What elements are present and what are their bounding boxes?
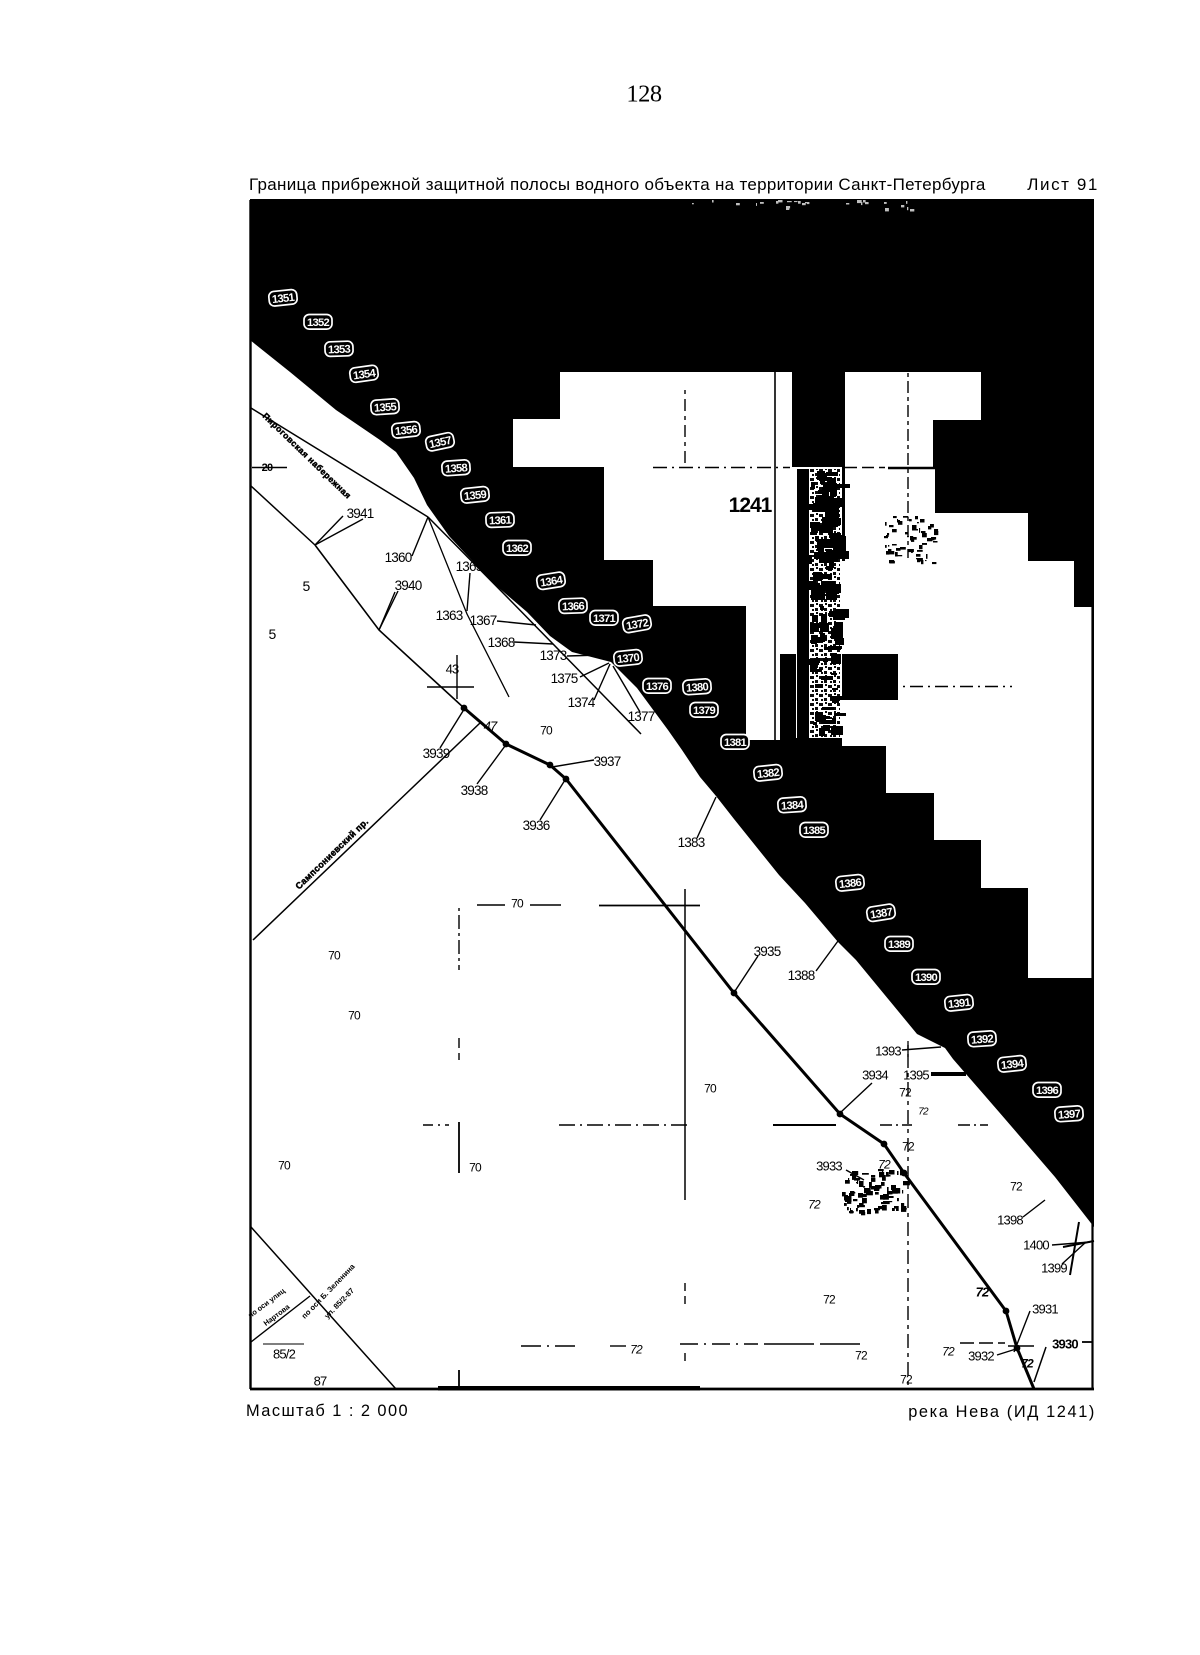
svg-text:1396: 1396 [1036,1085,1059,1097]
svg-text:70: 70 [328,948,341,962]
svg-text:1379: 1379 [693,705,716,717]
svg-text:1352: 1352 [307,317,330,329]
svg-text:3939: 3939 [423,746,450,761]
svg-text:70: 70 [348,1008,361,1022]
svg-text:72: 72 [942,1344,955,1358]
svg-text:70: 70 [469,1160,482,1174]
svg-text:1386: 1386 [838,877,862,891]
svg-text:20: 20 [262,462,273,474]
svg-text:1356: 1356 [394,424,418,438]
svg-text:72: 72 [976,1285,990,1300]
svg-text:1384: 1384 [781,799,805,813]
svg-text:3935: 3935 [754,944,781,959]
svg-text:1382: 1382 [756,767,780,781]
svg-text:3930: 3930 [1052,1337,1078,1352]
svg-text:3940: 3940 [395,578,422,593]
svg-text:3936: 3936 [523,818,550,833]
svg-text:1397: 1397 [1058,1108,1081,1122]
svg-text:1390: 1390 [915,972,938,984]
svg-text:1393: 1393 [875,1044,901,1059]
svg-text:1367: 1367 [470,613,497,628]
svg-text:1359: 1359 [463,489,487,503]
svg-text:1392: 1392 [971,1033,994,1047]
svg-text:72: 72 [823,1292,836,1306]
svg-text:3937: 3937 [594,754,621,769]
svg-text:1370: 1370 [616,652,640,666]
svg-text:5: 5 [303,578,311,594]
svg-text:70: 70 [540,723,553,737]
svg-text:3941: 3941 [347,506,374,521]
svg-text:1380: 1380 [686,681,709,695]
svg-text:река Нева (ИД 1241): река Нева (ИД 1241) [908,1403,1096,1421]
svg-text:70: 70 [511,896,524,910]
svg-text:Лист 91: Лист 91 [1027,175,1099,194]
svg-text:43: 43 [446,662,459,677]
svg-text:70: 70 [704,1081,717,1095]
svg-text:3933: 3933 [816,1159,842,1174]
svg-text:3932: 3932 [968,1349,994,1364]
svg-text:87: 87 [314,1374,327,1389]
svg-text:1400: 1400 [1023,1238,1049,1253]
svg-text:1375: 1375 [551,671,578,686]
svg-text:1366: 1366 [562,601,585,614]
svg-text:1389: 1389 [888,939,911,951]
svg-text:1353: 1353 [328,344,351,357]
svg-text:1368: 1368 [488,635,515,650]
svg-text:1241: 1241 [729,494,773,517]
svg-text:Масштаб 1 : 2 000: Масштаб 1 : 2 000 [246,1402,409,1420]
svg-text:72: 72 [855,1348,868,1362]
svg-text:1383: 1383 [678,835,705,850]
svg-text:1395: 1395 [903,1068,929,1083]
svg-text:1376: 1376 [646,681,669,693]
svg-text:1371: 1371 [593,613,616,625]
svg-text:72: 72 [1010,1179,1023,1193]
svg-text:72: 72 [808,1197,821,1211]
svg-text:72: 72 [899,1085,912,1099]
svg-text:70: 70 [278,1158,291,1172]
svg-text:3938: 3938 [461,783,488,798]
svg-text:47: 47 [484,719,498,734]
svg-text:1374: 1374 [568,695,596,710]
svg-text:1351: 1351 [271,292,295,306]
svg-text:Граница прибрежной защитной по: Граница прибрежной защитной полосы водно… [249,175,986,194]
svg-text:1377: 1377 [628,709,655,724]
svg-text:1388: 1388 [788,968,815,983]
svg-text:85/2: 85/2 [273,1347,296,1362]
svg-text:5: 5 [269,626,277,642]
svg-text:1361: 1361 [489,515,512,528]
svg-text:128: 128 [626,81,662,108]
svg-text:72: 72 [1021,1356,1034,1370]
svg-text:1391: 1391 [947,997,971,1011]
svg-text:1394: 1394 [1000,1058,1025,1072]
svg-text:1365: 1365 [456,559,483,574]
svg-text:3934: 3934 [862,1068,888,1083]
svg-text:1362: 1362 [506,543,529,555]
svg-text:1355: 1355 [374,401,397,415]
svg-text:1363: 1363 [436,608,463,623]
svg-text:3931: 3931 [1032,1302,1058,1317]
svg-text:1385: 1385 [803,825,826,837]
svg-text:72: 72 [878,1157,891,1171]
svg-text:1381: 1381 [724,737,747,749]
svg-text:1373: 1373 [540,648,567,663]
svg-text:72: 72 [630,1342,643,1356]
svg-text:72: 72 [918,1107,929,1118]
svg-text:1358: 1358 [445,462,468,476]
svg-text:1360: 1360 [385,550,412,565]
svg-text:1398: 1398 [997,1213,1023,1228]
svg-text:72: 72 [900,1372,913,1386]
svg-text:1399: 1399 [1041,1261,1067,1276]
svg-text:72: 72 [902,1139,915,1153]
